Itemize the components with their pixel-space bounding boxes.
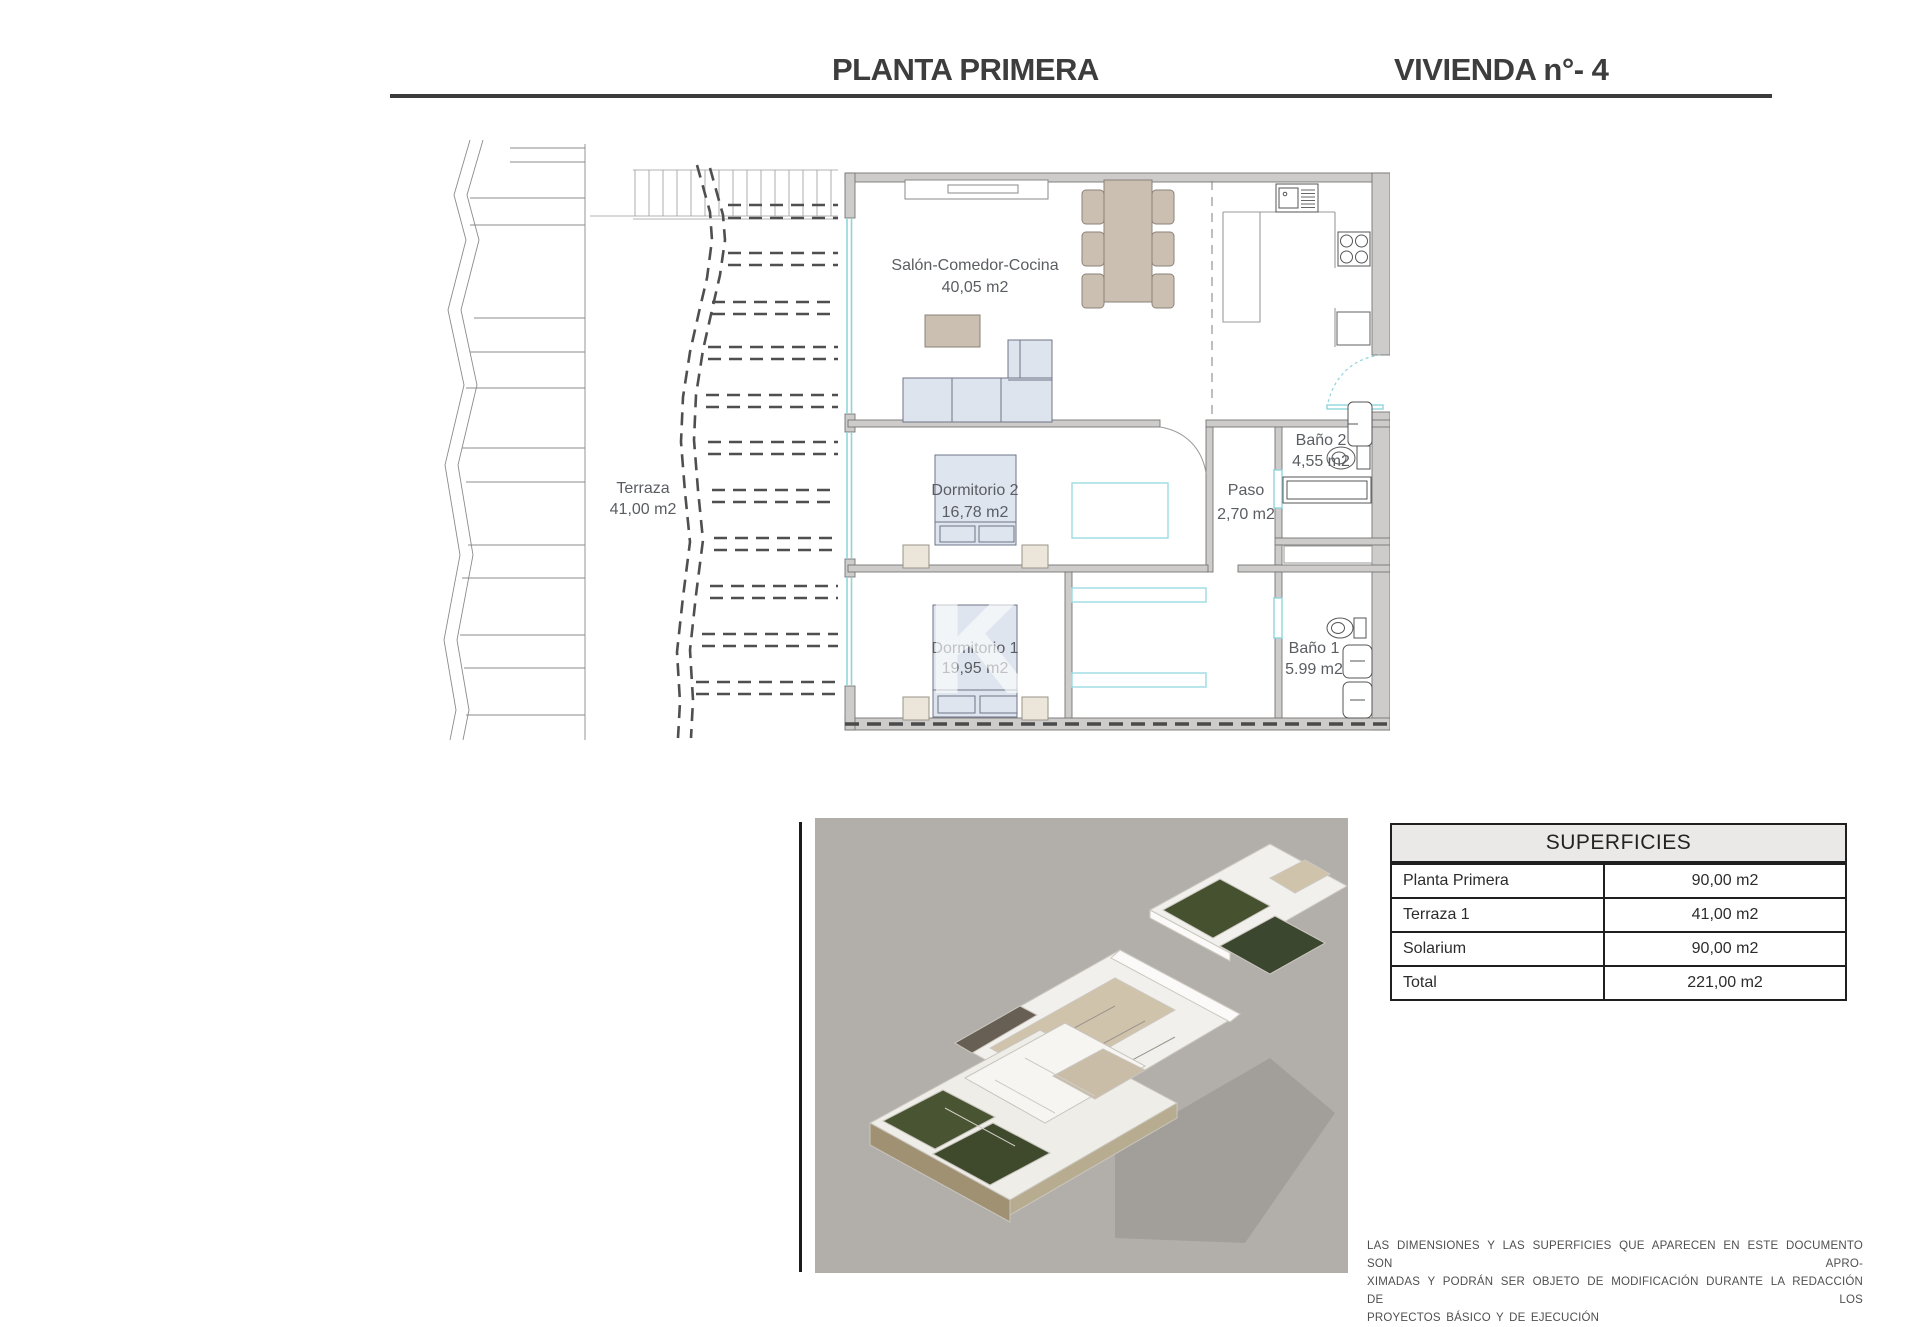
building-3d-render	[815, 818, 1348, 1273]
table-row: Terraza 1 41,00 m2	[1392, 897, 1845, 931]
floor-plan: Salón-Comedor-Cocina 40,05 m2 Terraza 41…	[440, 140, 1390, 740]
kitchen	[1212, 181, 1370, 418]
disclaimer-text: LAS DIMENSIONES Y LAS SUPERFICIES QUE AP…	[1367, 1237, 1863, 1327]
label-paso-name: Paso	[1228, 482, 1265, 499]
label-dorm2-name: Dormitorio 2	[931, 482, 1018, 499]
building-3d-render-svg	[815, 818, 1348, 1273]
superficies-table-header: SUPERFICIES	[1392, 825, 1845, 863]
watermark-k: K	[926, 557, 1034, 725]
label-terraza-name: Terraza	[616, 480, 669, 497]
table-row-value: 90,00 m2	[1605, 933, 1845, 965]
table-row-value: 221,00 m2	[1605, 967, 1845, 999]
closet-banos	[1284, 546, 1372, 563]
label-salon-name: Salón-Comedor-Cocina	[891, 257, 1058, 274]
table-row-label: Total	[1392, 967, 1605, 999]
hob	[1338, 232, 1370, 266]
table-row: Total 221,00 m2	[1392, 965, 1845, 999]
label-dorm2-area: 16,78 m2	[942, 504, 1009, 521]
table-row-label: Solarium	[1392, 933, 1605, 965]
sink	[1276, 184, 1318, 212]
pergola-dashed-lines	[677, 165, 838, 738]
table-row: Planta Primera 90,00 m2	[1392, 863, 1845, 897]
title-rule	[390, 94, 1772, 98]
window-bands	[847, 218, 852, 686]
label-bano2-area: 4,55 m2	[1292, 453, 1350, 470]
coffee-table	[925, 315, 980, 347]
label-bano1-area: 5.99 m2	[1285, 661, 1343, 678]
sofa	[903, 340, 1052, 422]
tv-unit	[905, 180, 1048, 199]
table-row-label: Terraza 1	[1392, 899, 1605, 931]
hall-wardrobes	[1072, 588, 1206, 687]
label-terraza-area: 41,00 m2	[610, 501, 677, 518]
superficies-table: SUPERFICIES Planta Primera 90,00 m2 Terr…	[1390, 823, 1847, 1001]
label-paso-area: 2,70 m2	[1217, 506, 1275, 523]
disclaimer-line-3: PROYECTOS BÁSICO Y DE EJECUCIÓN	[1367, 1309, 1863, 1327]
floor-plan-svg: Salón-Comedor-Cocina 40,05 m2 Terraza 41…	[440, 140, 1390, 740]
disclaimer-line-2: XIMADAS Y PODRÁN SER OBJETO DE MODIFICAC…	[1367, 1273, 1863, 1309]
label-bano2-name: Baño 2	[1296, 432, 1347, 449]
dining-set	[1082, 180, 1174, 308]
table-row-value: 41,00 m2	[1605, 899, 1845, 931]
render-divider-line	[799, 822, 802, 1272]
table-row: Solarium 90,00 m2	[1392, 931, 1845, 965]
label-bano1-name: Baño 1	[1289, 640, 1340, 657]
table-row-value: 90,00 m2	[1605, 865, 1845, 897]
bed-dorm2	[935, 455, 1016, 545]
disclaimer-line-1: LAS DIMENSIONES Y LAS SUPERFICIES QUE AP…	[1367, 1237, 1863, 1273]
page-title-vivienda: VIVIENDA n°- 4	[1394, 52, 1608, 88]
wardrobe-dorm2	[1072, 483, 1168, 538]
page-title-plan: PLANTA PRIMERA	[832, 52, 1092, 88]
label-salon-area: 40,05 m2	[942, 279, 1009, 296]
table-row-label: Planta Primera	[1392, 865, 1605, 897]
terrace-hatching	[590, 170, 838, 219]
terrain-contours	[444, 140, 585, 740]
